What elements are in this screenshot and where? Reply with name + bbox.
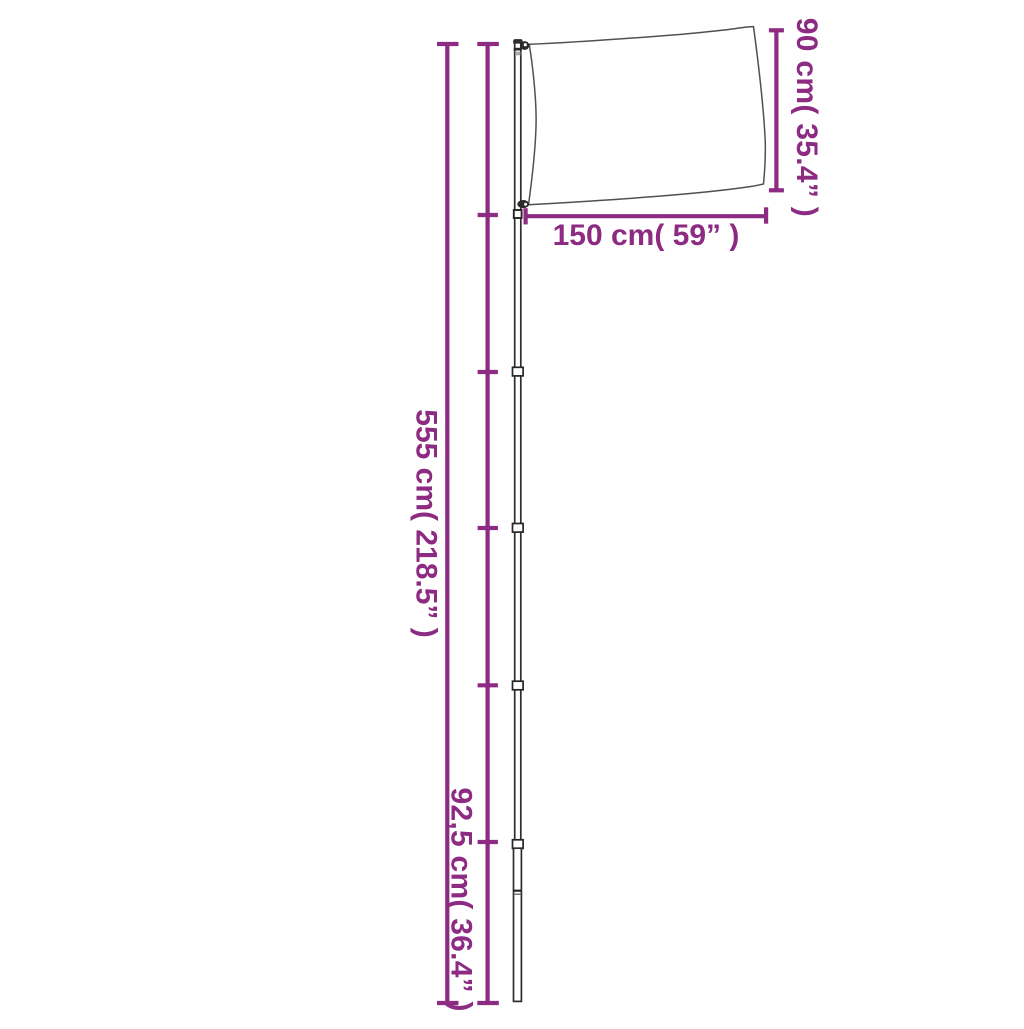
svg-text:92,5 cm( 36.4” ): 92,5 cm( 36.4” ) <box>445 788 478 1012</box>
svg-text:150 cm( 59” ): 150 cm( 59” ) <box>553 219 740 252</box>
svg-text:555 cm( 218.5” ): 555 cm( 218.5” ) <box>410 409 443 637</box>
svg-text:90 cm( 35.4” ): 90 cm( 35.4” ) <box>790 18 823 217</box>
